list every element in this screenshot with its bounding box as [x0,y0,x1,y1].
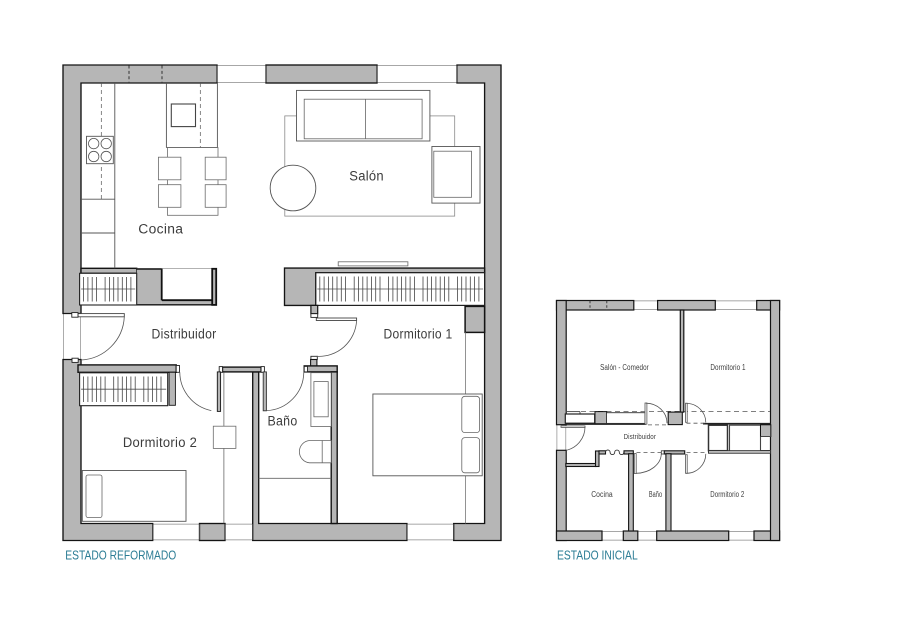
svg-text:ESTADO REFORMADO: ESTADO REFORMADO [65,549,176,563]
svg-text:Baño: Baño [268,414,298,429]
svg-text:Salón - Comedor: Salón - Comedor [600,363,649,372]
svg-text:Distribuidor: Distribuidor [152,327,217,342]
svg-text:Dormitorio 1: Dormitorio 1 [710,363,746,372]
svg-text:Dormitorio 2: Dormitorio 2 [123,435,197,450]
svg-text:Cocina: Cocina [138,222,183,237]
svg-text:Salón: Salón [349,169,384,184]
svg-text:Dormitorio 1: Dormitorio 1 [384,327,453,342]
svg-text:Distribuidor: Distribuidor [624,432,657,441]
svg-text:Dormitorio 2: Dormitorio 2 [710,490,744,499]
svg-text:Baño: Baño [649,490,663,499]
svg-text:ESTADO INICIAL: ESTADO INICIAL [557,549,638,563]
svg-text:Cocina: Cocina [591,490,613,499]
